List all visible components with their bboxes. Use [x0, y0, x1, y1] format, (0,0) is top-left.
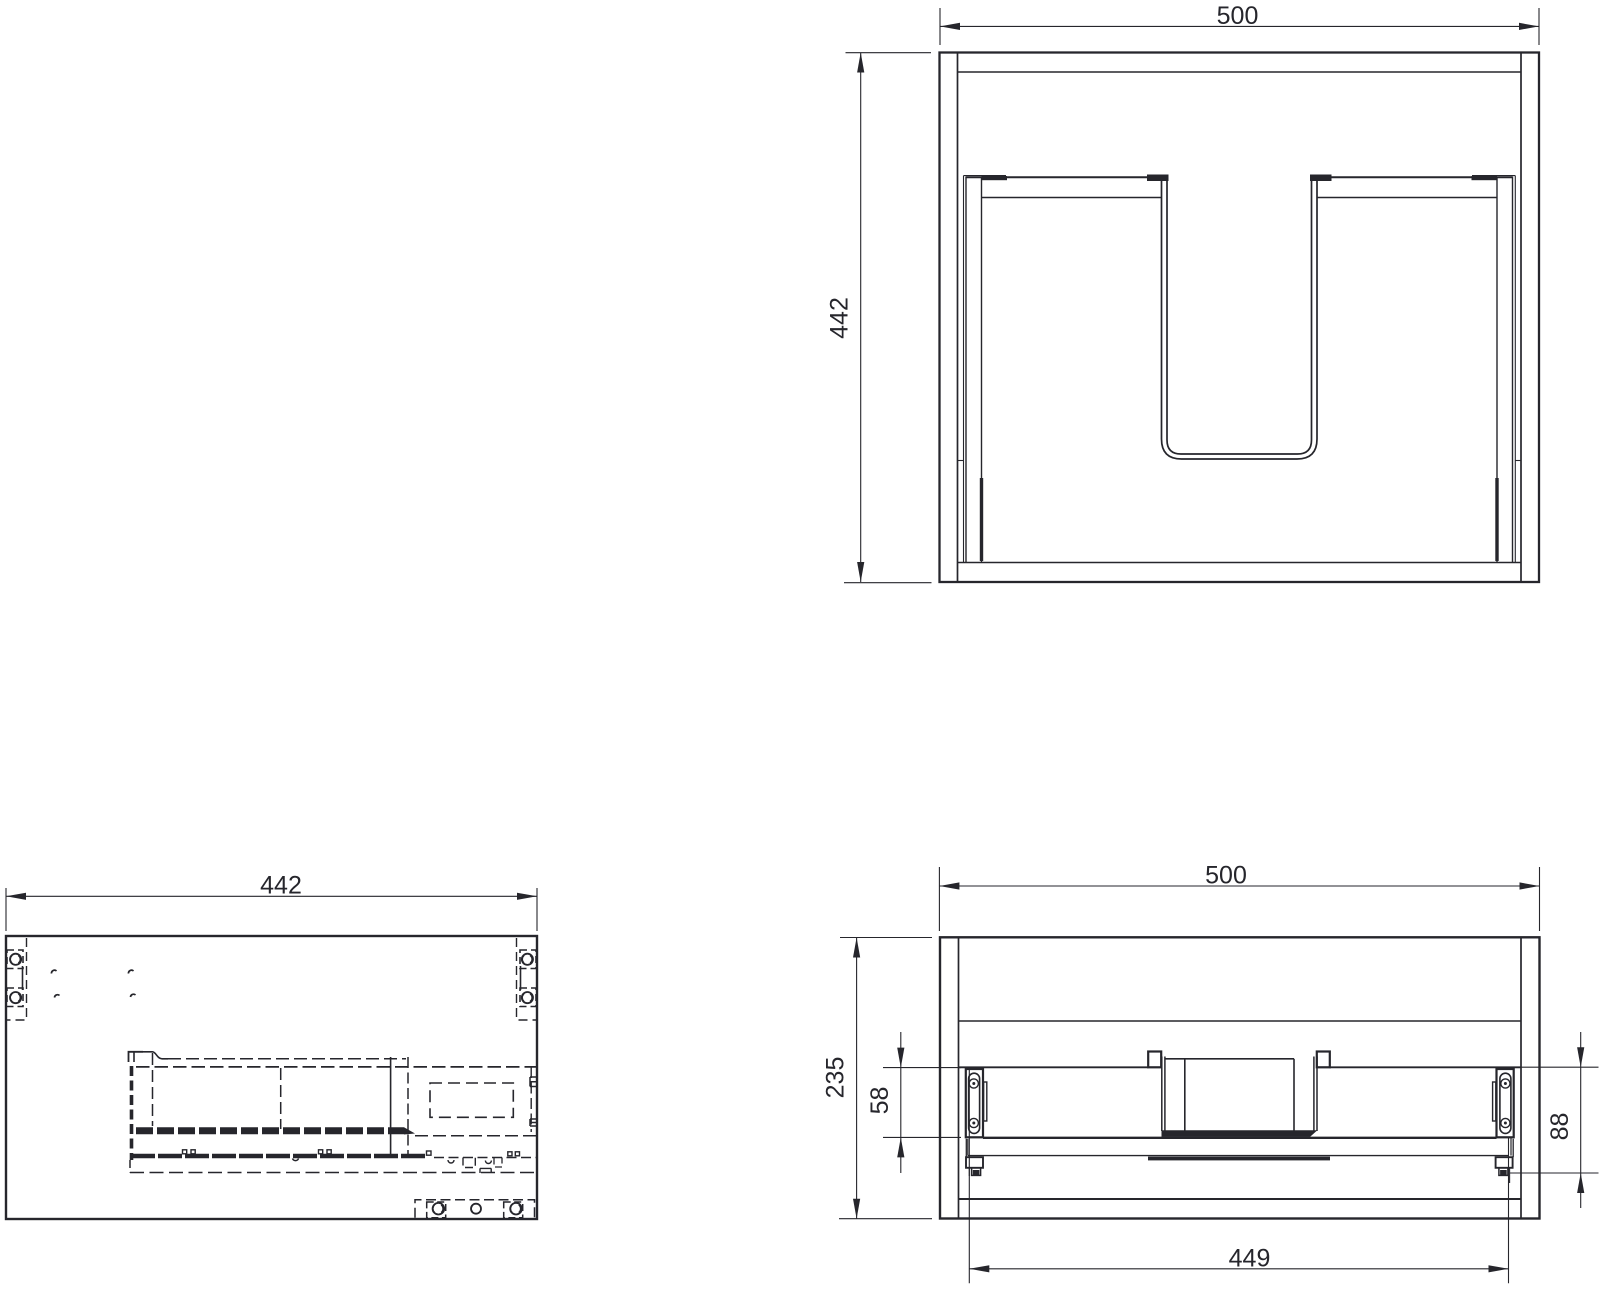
svg-text:500: 500 — [1217, 2, 1259, 30]
svg-text:442: 442 — [260, 872, 302, 900]
svg-text:88: 88 — [1546, 1113, 1574, 1141]
svg-text:449: 449 — [1229, 1245, 1271, 1273]
svg-text:500: 500 — [1205, 862, 1247, 890]
svg-text:58: 58 — [866, 1087, 894, 1115]
svg-text:442: 442 — [826, 297, 854, 339]
svg-text:235: 235 — [822, 1057, 850, 1099]
